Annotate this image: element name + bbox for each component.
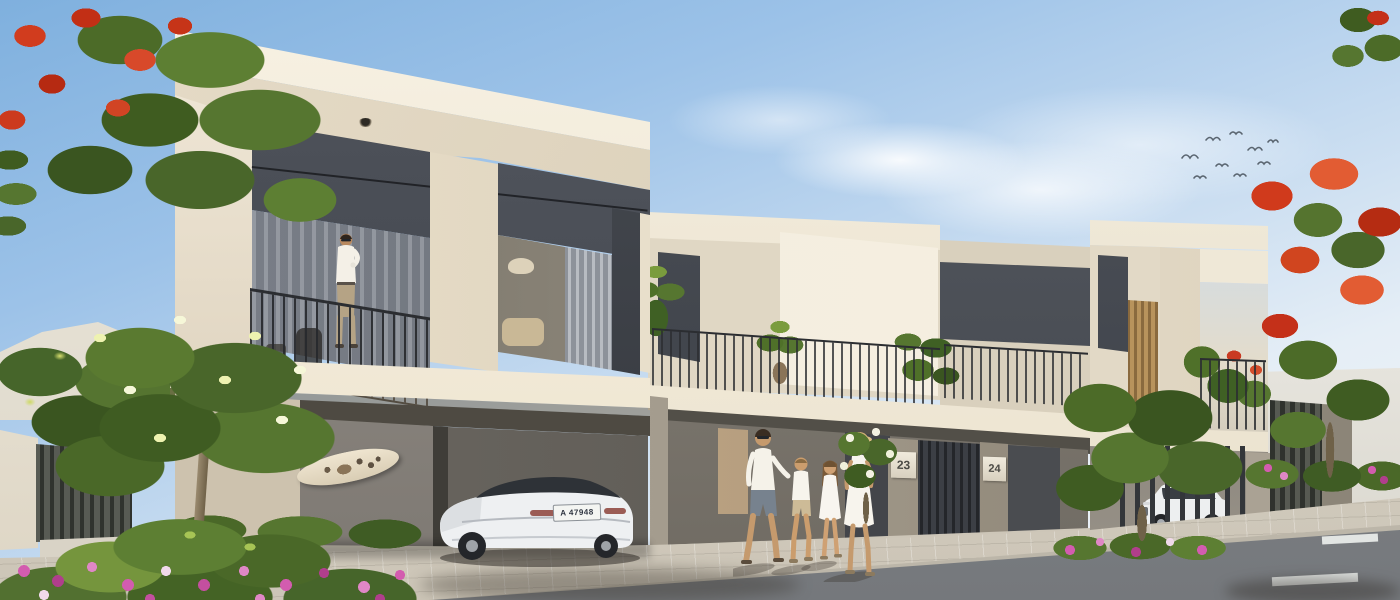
license-plate: A 47948 — [553, 503, 602, 522]
white-flower-bush — [820, 414, 912, 528]
ceiling-light-2 — [358, 118, 373, 127]
father — [741, 429, 788, 564]
pendant-lamp — [508, 258, 534, 274]
flower-bed — [0, 505, 450, 600]
frangipani-tree — [30, 298, 364, 498]
house-number-plate-24: 24 — [983, 457, 1006, 482]
corner-branch-top-right — [1318, 0, 1400, 92]
flame-tree — [1238, 130, 1400, 490]
sofa — [502, 318, 544, 346]
white-sedan — [432, 460, 644, 568]
left-edge-fronds — [0, 130, 70, 250]
right-trees — [1030, 358, 1258, 570]
scene-canvas: 23 24 — [0, 0, 1400, 600]
license-plate-text: A 47948 — [560, 507, 594, 517]
house-number-24: 24 — [988, 463, 1000, 475]
tree-shadow-road-right — [1225, 578, 1400, 600]
boy — [789, 458, 813, 564]
